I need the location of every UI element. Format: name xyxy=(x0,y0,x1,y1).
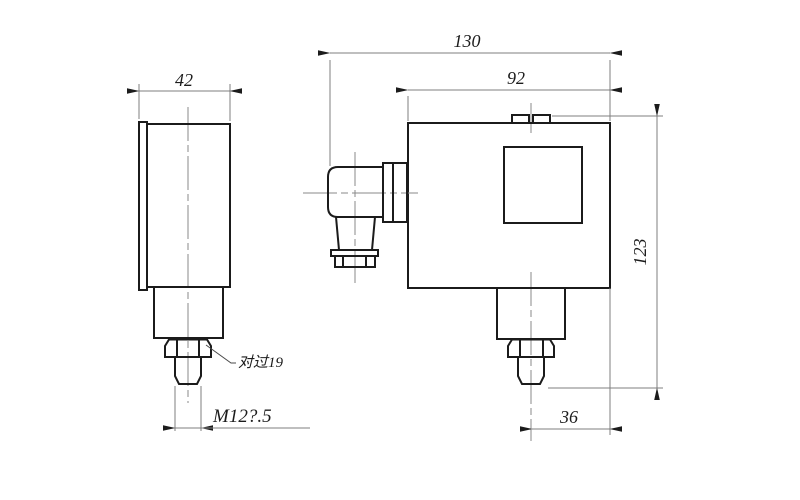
label-window xyxy=(504,147,582,223)
top-tab-right xyxy=(533,115,550,123)
dim-123: 123 xyxy=(548,116,663,388)
pressure-switch-drawing: 42 对过19 M12?.5 xyxy=(0,0,800,500)
hex-flats-label: 对过19 xyxy=(238,354,284,371)
dim-42-label: 42 xyxy=(175,70,193,90)
dim-92: 92 xyxy=(408,68,610,121)
dim-130-label: 130 xyxy=(454,31,481,51)
thread-spec-label: M12?.5 xyxy=(212,406,272,427)
front-view: 130 92 xyxy=(303,31,663,441)
dim-36-label: 36 xyxy=(559,407,578,427)
cable-connector xyxy=(303,152,418,283)
top-tab-left xyxy=(512,115,529,123)
dim-42: 42 xyxy=(139,70,230,121)
hex-flats-callout: 对过19 xyxy=(206,345,284,371)
side-view: 42 对过19 M12?.5 xyxy=(139,70,310,431)
dim-123-label: 123 xyxy=(630,239,650,266)
technical-drawing-canvas: 42 对过19 M12?.5 xyxy=(0,0,800,500)
dim-130: 130 xyxy=(330,31,610,166)
dim-thread: M12?.5 xyxy=(175,386,310,431)
dim-92-label: 92 xyxy=(507,68,525,88)
side-bezel-strip xyxy=(139,122,147,290)
